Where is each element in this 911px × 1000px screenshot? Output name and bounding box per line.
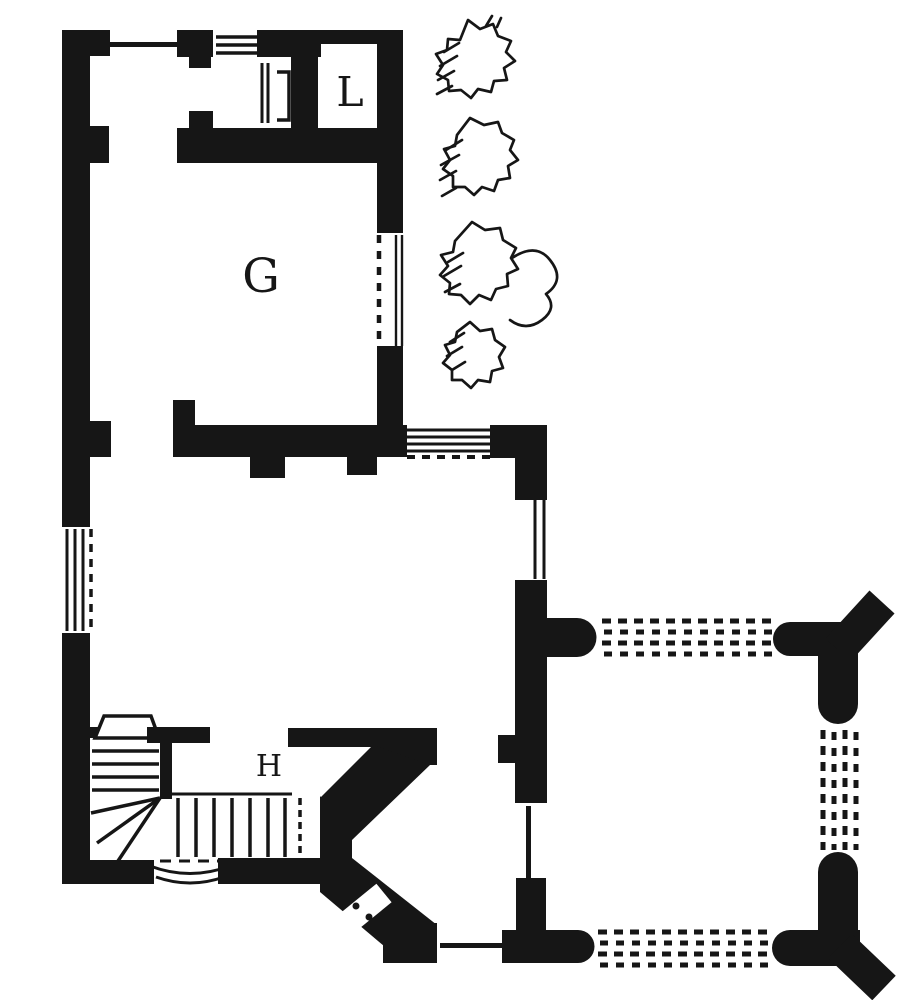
- stair-run-treads: [178, 798, 300, 857]
- top-wall-opening-line: [110, 42, 178, 47]
- tree-loop: [510, 250, 557, 326]
- top-wall-pier-stub: [189, 56, 211, 68]
- left-wall-pier-lower: [90, 421, 111, 457]
- porch-east-dotted-edge: [823, 730, 856, 850]
- hall-east-wall-pier: [498, 735, 516, 763]
- porch-post-southeast: [772, 852, 884, 988]
- porch-south-dotted-edge: [598, 932, 768, 965]
- pantry-fixture: [262, 63, 289, 123]
- north-rooms-door-jamb: [189, 111, 213, 128]
- g-room-south-wall-pier-1: [250, 456, 285, 478]
- left-wall-upper: [62, 30, 90, 527]
- bay-south-wall-stub: [383, 923, 437, 963]
- bottom-wall-left: [62, 860, 154, 884]
- left-wall-lower: [62, 633, 90, 884]
- stair-upper-flight-treads: [92, 751, 159, 790]
- top-wall-over-L-room: [318, 30, 380, 44]
- tree-clump-top: [436, 20, 515, 98]
- hall-east-wall-top: [515, 452, 547, 500]
- g-room-south-wall-pier-2: [347, 456, 377, 475]
- tree-hatch-lower: [444, 253, 463, 292]
- window-left-wall: [67, 529, 91, 631]
- g-room-south-wall: [173, 425, 407, 457]
- top-wall-corner: [62, 30, 110, 56]
- porch-door-opening-line: [526, 806, 531, 878]
- tree-sketch: [436, 16, 557, 388]
- top-wall-pier-block: [177, 30, 213, 57]
- stair-run-south-wall: [218, 858, 330, 884]
- porch-left-pier-base: [502, 930, 595, 963]
- fixture-bracket: [277, 72, 289, 120]
- window-top-wall: [216, 37, 258, 53]
- porch-left-pier-stem: [516, 878, 546, 933]
- g-room-south-wall-endcap: [173, 400, 195, 427]
- top-wall-right: [257, 30, 321, 57]
- window-right-wall: [379, 235, 402, 346]
- staircase: [86, 716, 300, 883]
- porch: [598, 602, 884, 988]
- porch-upper-pier: [547, 618, 596, 657]
- window-hall-east: [535, 500, 544, 579]
- pantry-L-divider-wall: [291, 56, 318, 140]
- stair-enclosure-wall-v: [160, 743, 172, 799]
- bay-door-dot-1: [353, 903, 360, 910]
- room-label-g: G: [242, 249, 280, 304]
- tree-clump-bottom: [443, 322, 505, 388]
- north-rooms-south-wall: [177, 128, 403, 163]
- porch-post-northeast: [773, 602, 882, 724]
- floor-plan-svg: G L H: [0, 0, 911, 1000]
- left-wall-pier-upper: [90, 126, 109, 163]
- stair-winder-treads: [91, 798, 160, 861]
- window-g-room-south: [407, 430, 494, 457]
- hall-east-wall: [515, 580, 547, 803]
- floor-plan-page: G L H: [0, 0, 911, 1000]
- right-wall-mid: [377, 346, 403, 426]
- tree-clump-lower: [440, 222, 518, 304]
- room-label-l: L: [336, 68, 363, 116]
- porch-north-dotted-edge: [602, 621, 772, 654]
- stair-enclosure-wall-h: [147, 727, 210, 743]
- bay-door-dot-2: [366, 914, 373, 921]
- porch-threshold-line: [440, 943, 503, 948]
- room-label-h: H: [256, 749, 282, 784]
